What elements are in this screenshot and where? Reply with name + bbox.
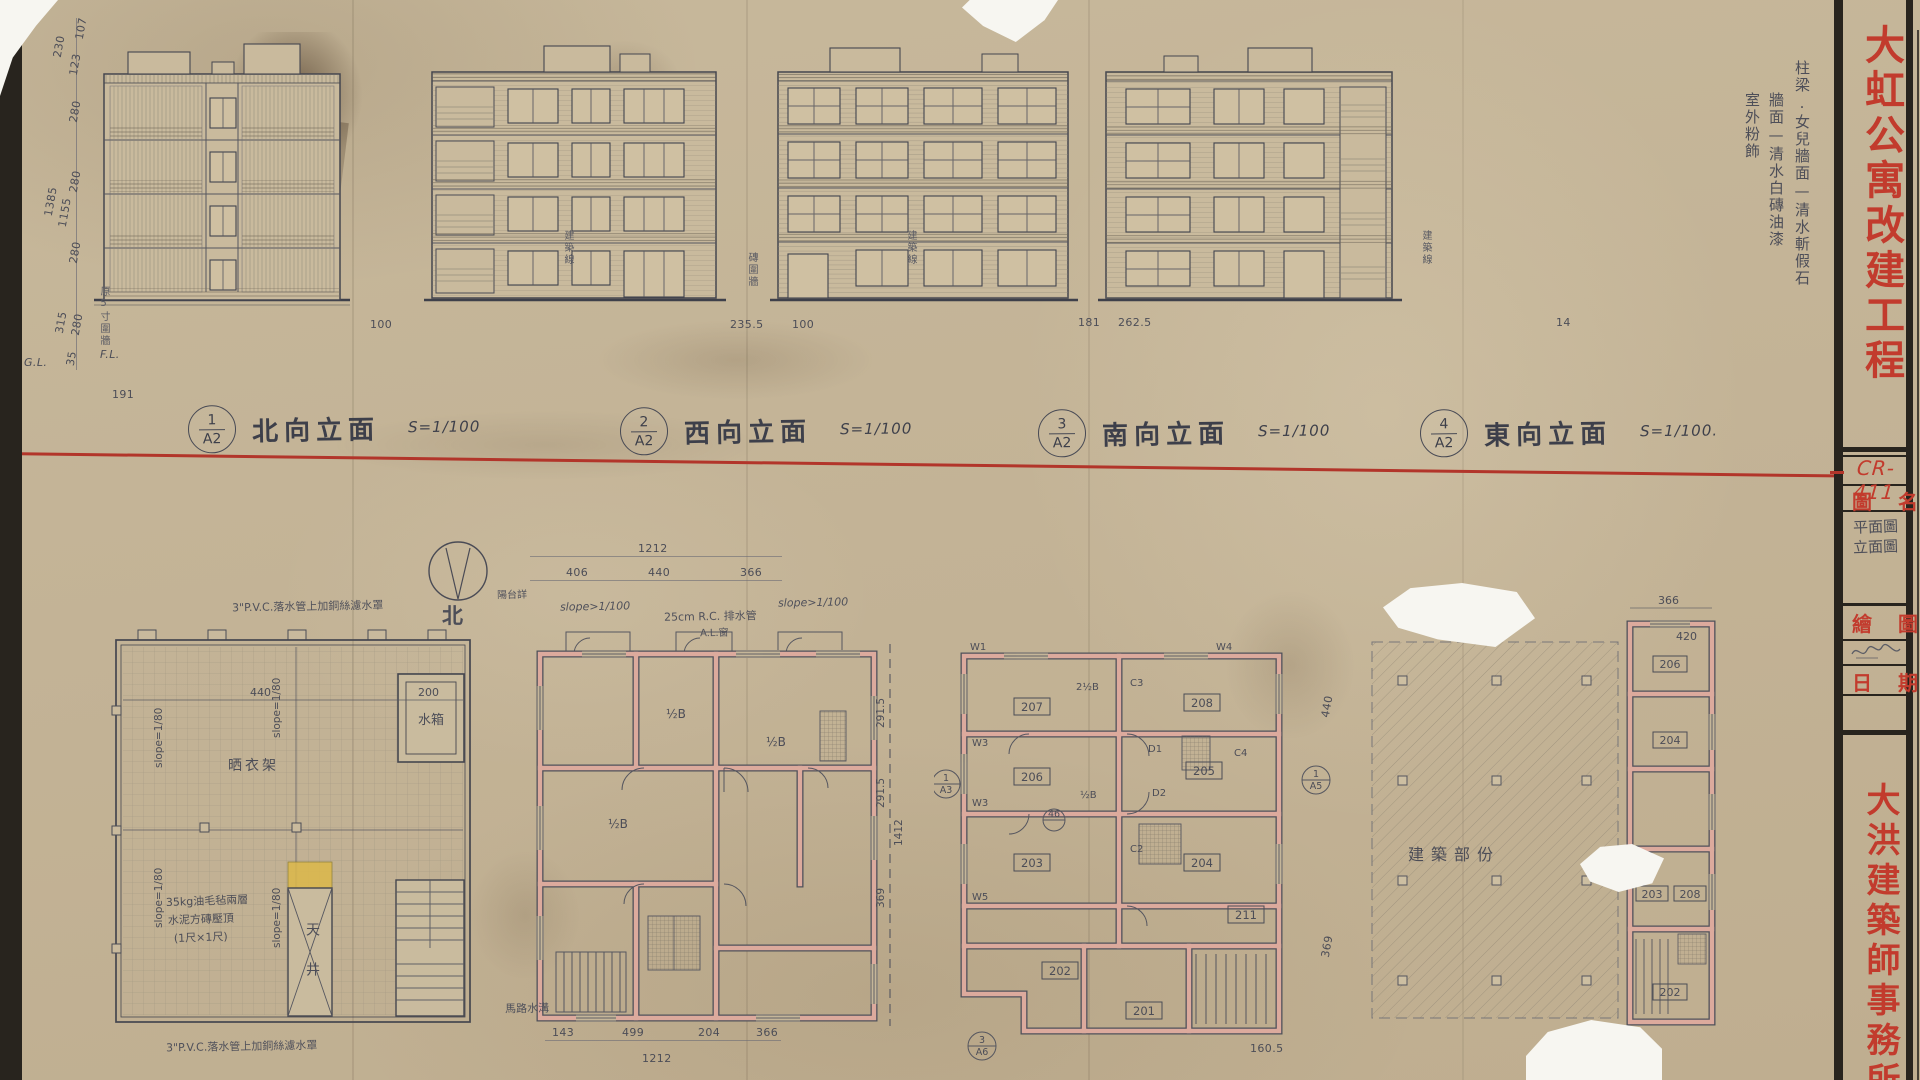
roof-note-top: 3"P.V.C.落水管上加銅絲濾水罩 [232,597,384,616]
column-mark: C2 [1130,844,1143,855]
unit-number-plan-drawing: 207 208 206 205 203 204 211 202 201 W1 W… [934,614,1338,1062]
ref-sheet: A5 [1310,781,1323,792]
titleblock-divider [1843,603,1906,606]
drawing-name-field-label: 圖名 [1848,486,1920,515]
ref-sheet: A2 [1435,434,1454,450]
dim-label: 35 [64,350,79,367]
site-note: 建築線 [1418,230,1433,290]
slope-note: slope=1/80 [271,678,283,738]
dim-label: 1212 [642,1052,672,1065]
hatch-area-label: 建築部份 [1408,845,1500,864]
titleblock-divider [1843,447,1906,452]
dim-label: 143 [552,1026,574,1039]
room-number: 206 [1660,658,1681,671]
window-mark: W1 [970,642,986,653]
room-number: 204 [1660,734,1681,747]
elevation-scale: S=1/100 [1258,421,1331,440]
ref-sheet: A2 [203,430,222,446]
dim-label: 191 [112,388,134,401]
window-note: A.L.窗 [700,624,729,639]
drawn-by-signature [1848,642,1904,662]
ref-number: 4 [1430,417,1457,434]
elevation-title: 北向立面 [252,408,381,447]
elevation-label-south: 3 A2 南向立面 S=1/100 [1038,406,1331,457]
column-bubble: 46 [1048,809,1060,820]
sheet-edge-line [1917,30,1919,1080]
door-mark: D1 [1148,744,1162,755]
dim-label: 204 [698,1026,720,1039]
ref-sheet: A2 [635,432,654,448]
dim-label: 366 [756,1026,778,1039]
dim-label: 200 [418,686,439,699]
window-mark: W3 [972,798,988,809]
elevation-scale: S=1/100. [1640,421,1718,440]
date-field-label: 日期 [1848,667,1920,696]
drawing-ref-bubble: 1 A2 [188,405,237,454]
dim-label: 291.5 [875,698,887,728]
ref-number: 1 [1313,769,1319,780]
slope-note: slope>1/100 [778,595,848,609]
dim-label: 280 [67,99,84,123]
typical-floor-plan-drawing: ½B ½B ½B 291.5 291.5 369 1412 [516,616,918,1036]
dim-label: 366 [1658,594,1679,607]
dim-label: 291.5 [875,778,887,808]
slope-note: slope=1/80 [271,888,283,948]
project-title: 大虹公寓改建工程 [1852,24,1910,384]
titleblock-left-bar [1834,0,1843,1080]
room-number: 208 [1191,696,1213,710]
dim-label: 366 [740,566,762,579]
dim-label: 181 [1078,316,1100,329]
roof-plan-drawing: 水箱 slope=1/80 slope=1/80 slope=1/80 slop… [110,618,484,1034]
elevation-east-drawing [1098,30,1402,314]
room-number: 202 [1049,964,1071,978]
elevation-west-drawing [424,28,726,314]
roof-note-bottom: 3"P.V.C.落水管上加銅絲濾水罩 [166,1037,318,1056]
ref-sheet: A2 [1053,434,1072,450]
drawing-ref-bubble: 3 A2 [1038,409,1087,458]
room-number: 203 [1642,888,1663,901]
dim-label: 123 [67,52,84,76]
titleblock-divider [1843,730,1906,735]
dim-label: 420 [1676,630,1697,643]
dim-label: 100 [792,318,814,331]
water-tank-label: 水箱 [418,712,444,728]
stain [596,320,876,400]
dim-line [530,580,782,581]
room-number: 201 [1133,1004,1155,1018]
light-well-label: 天井 [302,922,322,1002]
elevation-label-north: 1 A2 北向立面 S=1/100 [188,402,481,453]
titleblock-divider [1843,664,1906,666]
room-label: ½B [766,735,786,749]
ref-sheet: A3 [940,785,953,796]
room-number: 202 [1660,986,1681,999]
blueprint-sheet: 1 A2 北向立面 S=1/100 2 A2 西向立面 S=1/100 3 A2… [0,0,1920,1080]
roof-cap-note: 35kg油毛毡兩層 [166,892,249,909]
room-number: 203 [1021,856,1043,870]
room-number: 208 [1680,888,1701,901]
room-label: ½B [608,817,628,831]
north-compass [420,538,500,608]
finish-note-exterior: 室外粉飾 [1742,92,1763,160]
dim-label: 280 [67,169,84,193]
roof-cap-note: (1尺×1尺) [174,930,228,945]
slope-note: slope=1/80 [153,868,165,928]
room-label: ½B [666,707,686,721]
dim-line [530,556,782,557]
finish-note-materials: 柱梁.女兒牆面—清水斬假石 [1792,60,1813,287]
elevation-scale: S=1/100 [840,419,913,438]
window-mark: W3 [972,738,988,749]
drawing-ref-bubble: 4 A2 [1420,409,1469,458]
drawing-name-value: 立面圖 [1853,535,1899,558]
elevation-title: 東向立面 [1484,412,1613,451]
drawn-by-field-label: 繪圖 [1848,608,1920,637]
site-note: 磚圍牆 [744,252,759,308]
dim-label: 280 [67,240,84,264]
dim-label: 369 [875,888,887,908]
slope-note: slope=1/80 [153,708,165,768]
dim-label: 406 [566,566,588,579]
room-number: 206 [1021,770,1043,784]
left-binding-band [0,0,22,1080]
elevation-title: 西向立面 [684,410,813,449]
drying-rack-label: 晒衣架 [228,758,279,774]
elevation-north-drawing [92,26,352,316]
room-number: 204 [1191,856,1213,870]
ref-sheet: A6 [976,1047,989,1058]
dim-label: 100 [370,318,392,331]
dim-label: 1412 [893,819,905,846]
dim-label: 107 [73,16,90,40]
elevation-label-east: 4 A2 東向立面 S=1/100. [1420,406,1719,457]
room-number: 211 [1235,908,1257,922]
site-note: 建築線 [903,230,918,290]
dim-label: 160.5 [1250,1042,1284,1055]
balcony-detail-note: 陽台詳 [497,586,527,602]
firm-name: 大洪建築師事務所 [1856,782,1905,1080]
dim-label: 1212 [638,542,668,555]
column-mark: C3 [1130,678,1143,689]
partial-plan-drawing: 建築部份 206 204 203 208 202 366 420 [1360,594,1730,1064]
site-note: 建築線 [560,230,575,290]
drawing-name-value: 平面圖 [1853,515,1899,538]
ref-number: 3 [979,1035,985,1046]
window-mark: W5 [972,892,988,903]
ref-number: 1 [198,413,225,430]
dim-label: 440 [250,686,271,699]
unit-type-label: 2½B [1076,681,1099,693]
dim-label: 315 [53,310,70,334]
drain-note: 25cm R.C. 排水管 [664,607,757,625]
room-number: 207 [1021,700,1043,714]
dim-label: 14 [1556,316,1571,329]
window-mark: W4 [1216,642,1232,653]
elevation-title: 南向立面 [1102,412,1231,451]
dim-label: 1155 [56,197,74,228]
dim-label: 235.5 [730,318,764,331]
door-mark: D2 [1152,788,1166,799]
slope-note: slope>1/100 [560,599,630,613]
ref-number: 3 [1048,417,1075,434]
room-number: 205 [1193,764,1215,778]
dim-label: 280 [69,312,86,336]
dim-label: 499 [622,1026,644,1039]
drawing-ref-bubble: 2 A2 [620,407,669,456]
dim-label: 230 [51,34,68,58]
ref-number: 1 [943,773,949,784]
red-divider-tick [1830,471,1844,474]
dim-label: 262.5 [1118,316,1152,329]
site-note: 原5寸圍牆 [96,286,111,366]
road-gutter-note: 馬路水溝 [505,1000,549,1017]
elevation-scale: S=1/100 [408,417,481,436]
titleblock-divider [1843,639,1906,641]
column-mark: C4 [1234,748,1247,759]
unit-type-label: ½B [1080,789,1097,801]
elevation-label-west: 2 A2 西向立面 S=1/100 [620,404,913,455]
elevation-south-drawing [770,28,1078,314]
finish-note-wall: 牆面—清水白磚油漆 [1766,92,1787,248]
roof-cap-note: 水泥方磚壓頂 [168,911,234,927]
dim-label: 440 [648,566,670,579]
dim-line [545,1040,781,1041]
ref-number: 2 [630,415,657,432]
ground-line-label: G.L. [24,356,47,369]
